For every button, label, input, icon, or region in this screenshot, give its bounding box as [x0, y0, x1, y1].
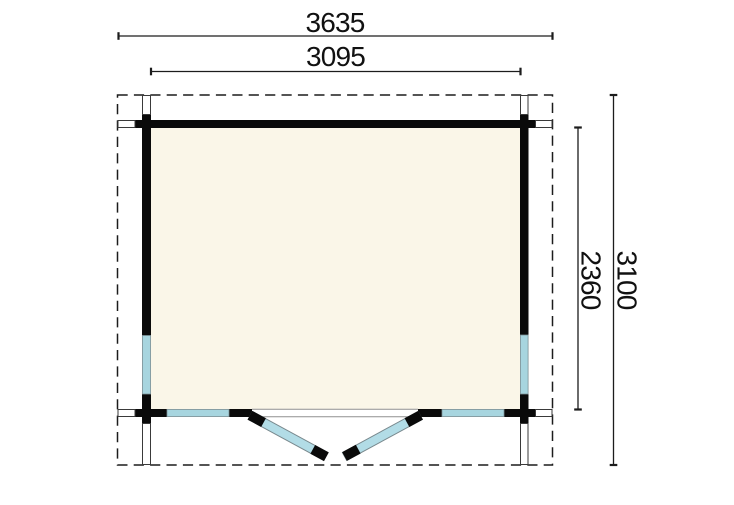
svg-text:3095: 3095	[306, 41, 365, 72]
svg-text:2360: 2360	[576, 250, 607, 309]
svg-text:3100: 3100	[612, 250, 643, 309]
svg-text:3635: 3635	[305, 7, 364, 38]
